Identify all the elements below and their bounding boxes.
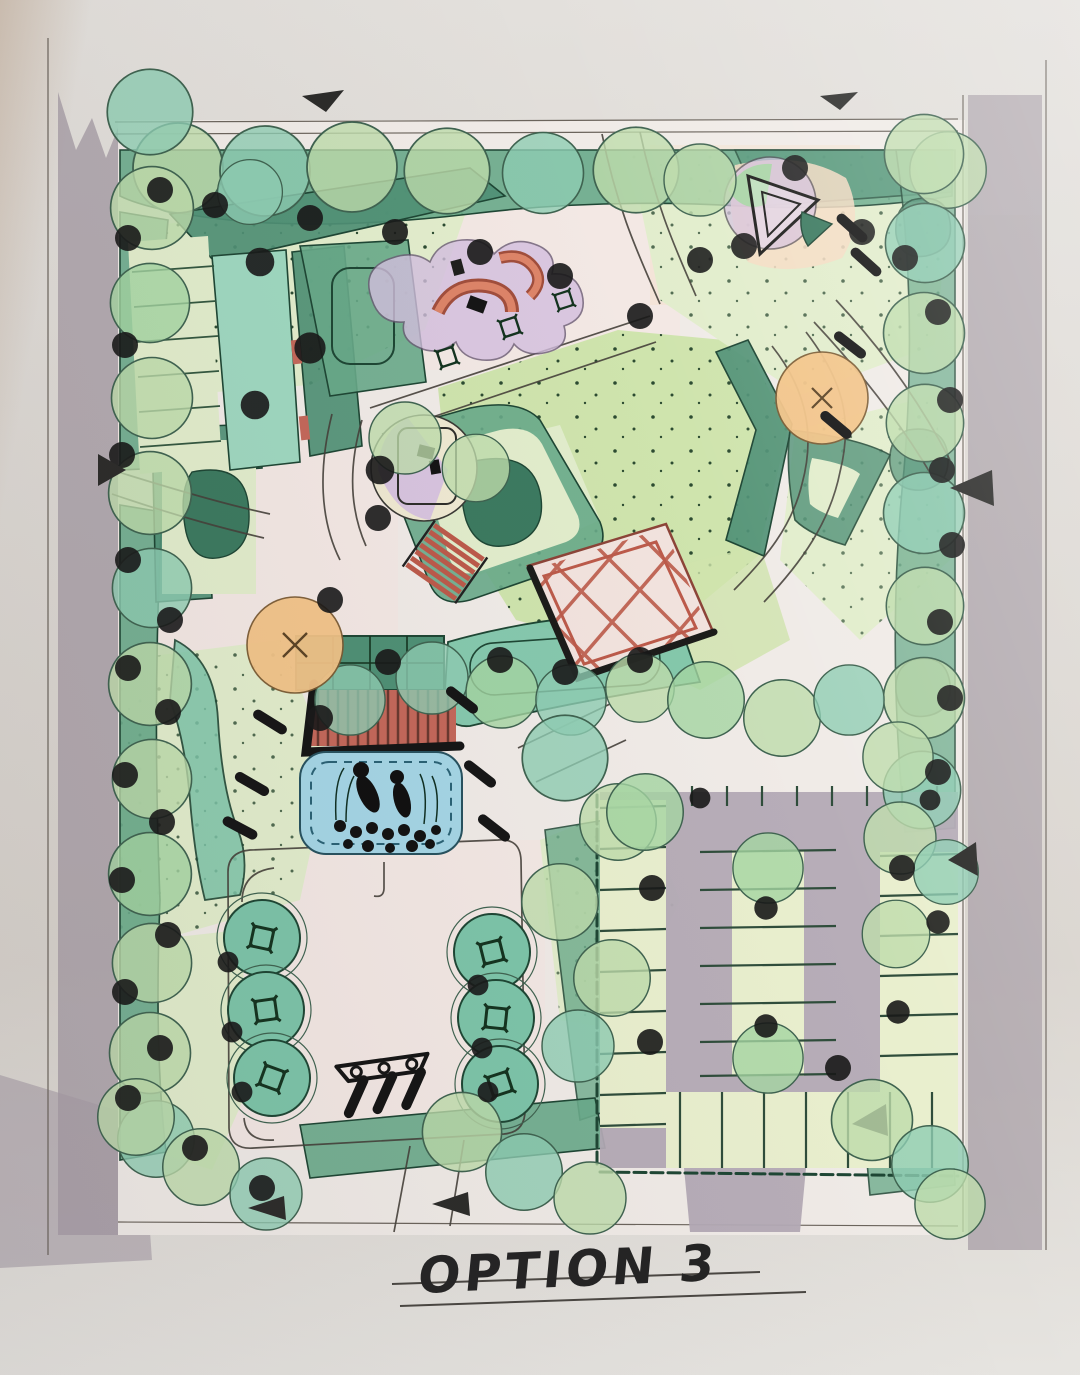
scanned-plan-page: OPTION 3 [0, 0, 1080, 1375]
site-plan-drawing [0, 0, 1080, 1375]
